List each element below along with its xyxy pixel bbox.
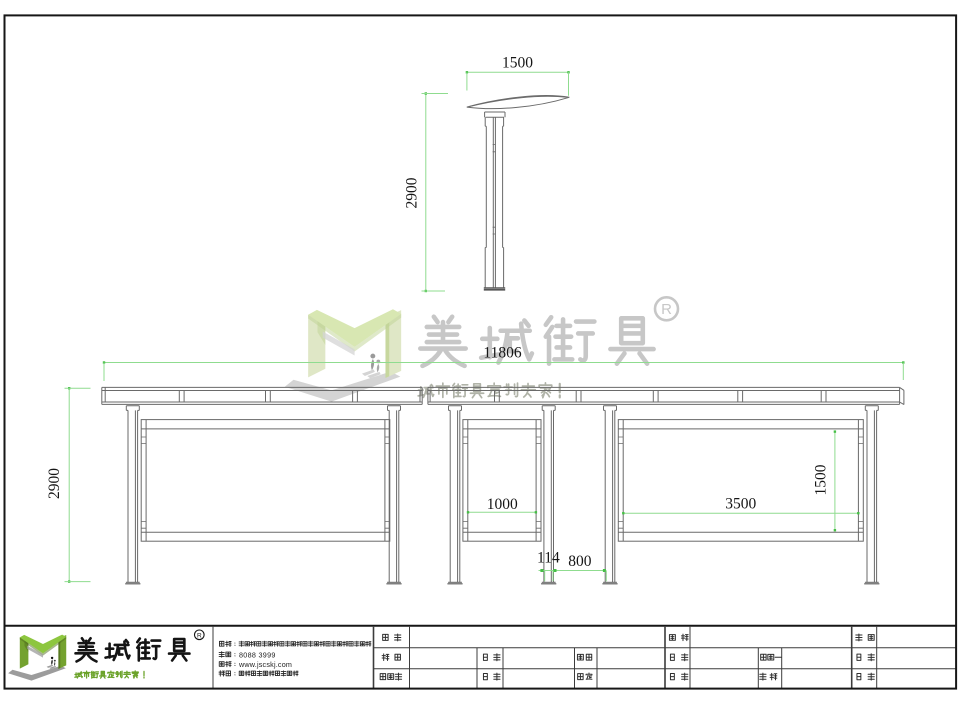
svg-text:2900: 2900 — [404, 177, 421, 208]
svg-text:1000: 1000 — [487, 496, 518, 513]
svg-text:3500: 3500 — [725, 496, 756, 513]
svg-text:1500: 1500 — [812, 464, 829, 495]
svg-text:www.jscskj.com: www.jscskj.com — [238, 660, 292, 669]
svg-text:11806: 11806 — [483, 344, 521, 361]
svg-text:2900: 2900 — [46, 468, 63, 499]
svg-text:R: R — [661, 301, 672, 318]
svg-text:800: 800 — [568, 553, 592, 570]
svg-text:114: 114 — [537, 549, 560, 566]
svg-text:1500: 1500 — [502, 54, 533, 71]
svg-text:8088 3999: 8088 3999 — [239, 651, 276, 660]
svg-text:R: R — [197, 633, 202, 640]
